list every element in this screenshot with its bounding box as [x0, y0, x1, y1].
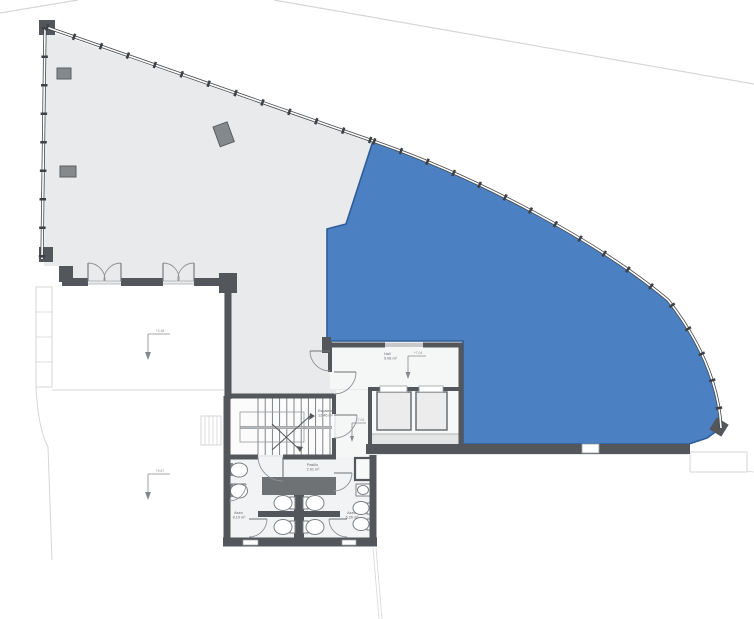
elevator-car: [416, 392, 447, 430]
toilet: [306, 520, 324, 535]
svg-text:+7.04: +7.04: [356, 418, 365, 422]
toilet: [274, 520, 292, 535]
svg-text:+5.67: +5.67: [156, 469, 165, 473]
vanity-counter: [262, 477, 336, 495]
toilet: [274, 496, 292, 511]
column: [57, 68, 71, 79]
floor-plan-canvas: +3.38 +5.67 +7.04 +7.04 Hall 9.08 m² Esc…: [0, 0, 754, 619]
toilet: [306, 496, 324, 511]
column: [60, 166, 76, 177]
washbasin: [358, 486, 369, 495]
wall-opening: [582, 444, 599, 453]
corridor-label: Pasillo 2.91 m²: [307, 463, 321, 472]
washbasin: [231, 463, 248, 477]
floor-plan-page: +3.38 +5.67 +7.04 +7.04 Hall 9.08 m² Esc…: [0, 0, 754, 619]
elevator-car: [377, 392, 411, 430]
duct-shaft: [355, 458, 371, 480]
svg-text:+7.04: +7.04: [414, 351, 423, 355]
svg-text:+3.38: +3.38: [156, 329, 165, 333]
